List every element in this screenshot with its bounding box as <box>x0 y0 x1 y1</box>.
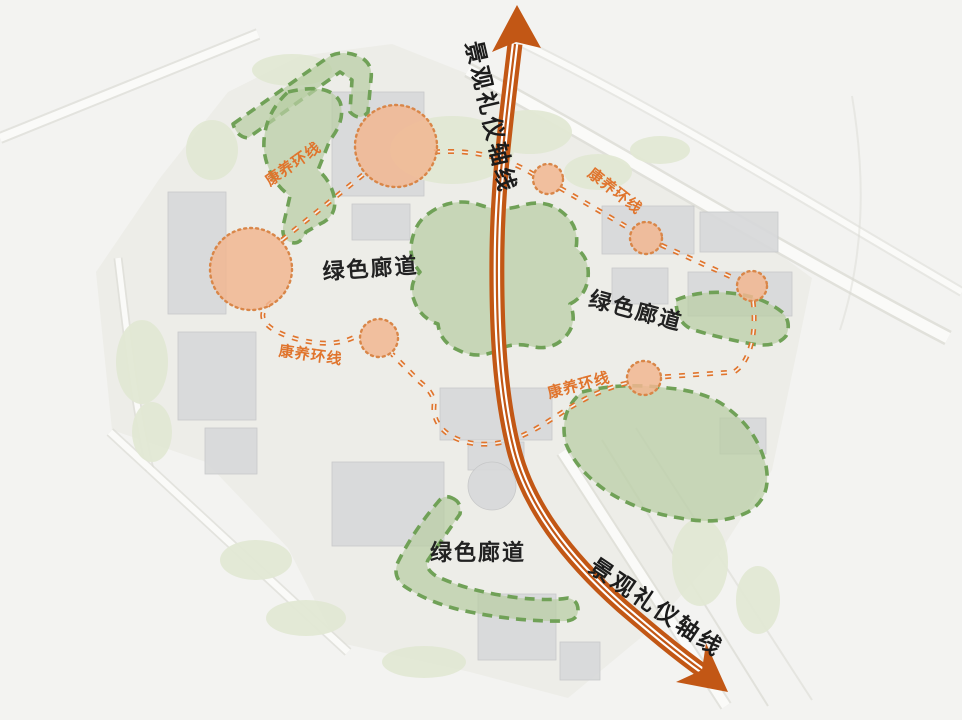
wellness-node-circle <box>737 271 767 301</box>
green-corridor-label-south: 绿色廊道 <box>430 540 526 565</box>
site-plan-canvas: 景观礼仪轴线 景观礼仪轴线 绿色廊道 绿色廊道 绿色廊道 康养环线 康养环线 康… <box>0 0 962 720</box>
plaza-circle <box>468 462 516 510</box>
landscape-analysis-diagram: 景观礼仪轴线 景观礼仪轴线 绿色廊道 绿色廊道 绿色廊道 康养环线 康养环线 康… <box>0 0 962 720</box>
wellness-node-circle <box>627 361 661 395</box>
wellness-node-circle <box>533 164 563 194</box>
wellness-node-circle <box>355 105 437 187</box>
wellness-node-circle <box>360 319 398 357</box>
wellness-node-circle <box>210 228 292 310</box>
wellness-node-circle <box>630 222 662 254</box>
